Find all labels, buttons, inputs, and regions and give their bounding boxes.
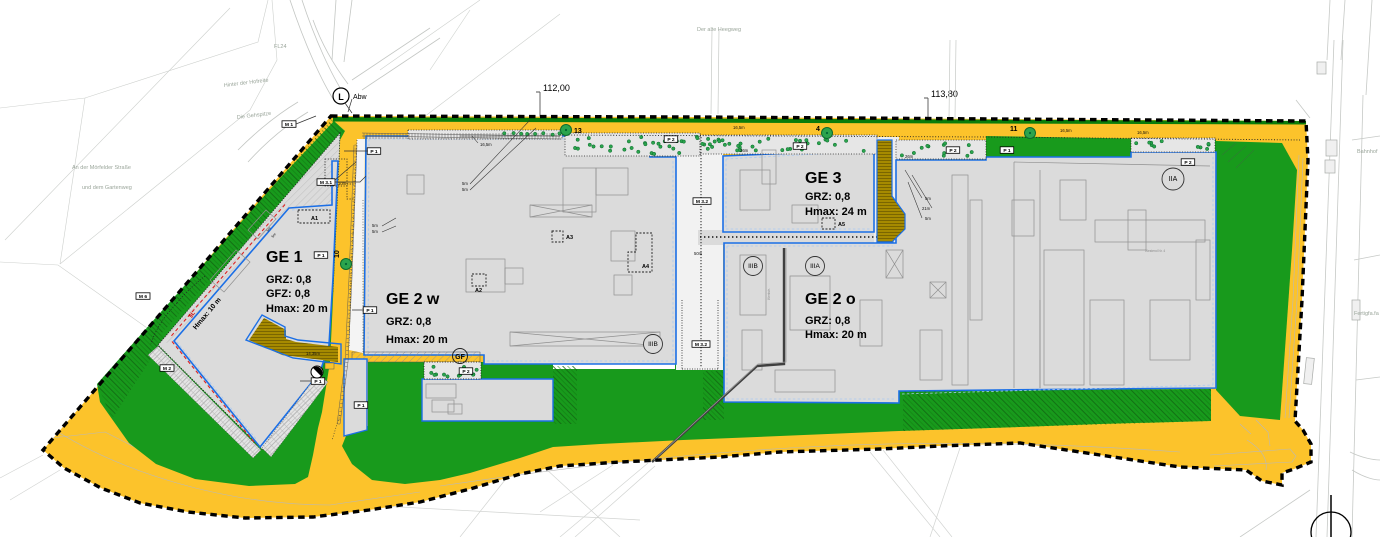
svg-text:A1: A1 [311, 216, 318, 222]
svg-text:5m: 5m [372, 223, 378, 228]
svg-text:10: 10 [334, 250, 341, 258]
svg-text:P 2: P 2 [667, 137, 675, 143]
svg-text:Werkstr.: Werkstr. [767, 288, 771, 300]
svg-text:A4: A4 [642, 264, 650, 270]
svg-text:10m: 10m [338, 181, 347, 186]
svg-text:IIIB: IIIB [748, 263, 758, 270]
svg-text:16,5m: 16,5m [480, 142, 492, 147]
svg-text:L: L [338, 92, 344, 102]
svg-text:P 1: P 1 [370, 149, 378, 155]
svg-text:P 2: P 2 [949, 148, 957, 154]
svg-text:P 1: P 1 [317, 253, 325, 259]
svg-text:GE 2 w: GE 2 w [386, 291, 440, 308]
svg-text:GE 3: GE 3 [805, 170, 842, 187]
svg-text:An der Mörfelder Straße: An der Mörfelder Straße [72, 165, 131, 171]
svg-text:Hmax: 24 m: Hmax: 24 m [805, 206, 867, 218]
svg-text:26m: 26m [905, 154, 914, 159]
svg-text:Hmax: 20 m: Hmax: 20 m [386, 334, 448, 346]
svg-text:P 1: P 1 [314, 379, 322, 385]
svg-text:M 3.2: M 3.2 [696, 199, 709, 205]
svg-text:16,5m: 16,5m [1137, 130, 1149, 135]
svg-text:5m: 5m [462, 187, 468, 192]
svg-text:M 3.1: M 3.1 [320, 180, 333, 186]
svg-text:5m: 5m [462, 181, 468, 186]
svg-text:GE 2 o: GE 2 o [805, 291, 856, 308]
svg-text:Abw: Abw [353, 94, 368, 101]
svg-text:21m: 21m [922, 206, 931, 211]
svg-text:16,5m: 16,5m [733, 125, 745, 130]
svg-text:GRZ: 0,8: GRZ: 0,8 [805, 191, 850, 203]
svg-text:16,5m: 16,5m [1060, 128, 1072, 133]
svg-text:FL24: FL24 [274, 44, 287, 50]
svg-text:IIIB: IIIB [648, 341, 658, 348]
svg-text:5m: 5m [372, 229, 378, 234]
svg-text:P 1: P 1 [357, 403, 365, 409]
svg-text:P 1: P 1 [1003, 148, 1011, 154]
svg-text:GF: GF [455, 354, 465, 361]
svg-text:P 2: P 2 [1184, 160, 1192, 166]
svg-text:112,00: 112,00 [543, 83, 570, 93]
svg-text:Hmax: 20 m: Hmax: 20 m [805, 329, 867, 341]
svg-text:Hmax: 20 m: Hmax: 20 m [266, 303, 328, 315]
svg-text:GRZ: 0,8: GRZ: 0,8 [805, 315, 850, 327]
svg-text:11: 11 [1010, 126, 1018, 133]
svg-text:5m: 5m [925, 216, 931, 221]
svg-text:P 1: P 1 [366, 308, 374, 314]
svg-text:und dem Gartenweg: und dem Gartenweg [82, 185, 132, 191]
svg-text:M 3.2: M 3.2 [695, 342, 708, 348]
svg-text:M 1: M 1 [285, 122, 293, 128]
svg-text:Die Gehspitze: Die Gehspitze [237, 111, 272, 121]
svg-text:26m: 26m [740, 148, 749, 153]
svg-text:GFZ: 0,8: GFZ: 0,8 [266, 288, 310, 300]
svg-text:Bahnhof: Bahnhof [1357, 149, 1378, 155]
svg-text:Westend Nr. 4: Westend Nr. 4 [1145, 249, 1165, 253]
svg-text:4: 4 [816, 126, 820, 133]
svg-text:IIA: IIA [1169, 176, 1178, 183]
svg-text:14,35m: 14,35m [306, 351, 320, 356]
svg-text:GRZ: 0,8: GRZ: 0,8 [266, 274, 311, 286]
svg-text:113,80: 113,80 [931, 89, 958, 99]
svg-text:P 2: P 2 [796, 144, 804, 150]
svg-text:GRZ: 0,8: GRZ: 0,8 [386, 316, 431, 328]
svg-text:50m: 50m [694, 251, 703, 256]
svg-text:A3: A3 [566, 235, 573, 241]
svg-text:GE 1: GE 1 [266, 249, 303, 266]
svg-text:M 6: M 6 [139, 294, 147, 300]
svg-text:M 2: M 2 [163, 366, 171, 372]
svg-text:Fertigfa.fa: Fertigfa.fa [1354, 311, 1380, 317]
svg-text:A2: A2 [475, 288, 482, 294]
svg-text:A5: A5 [838, 222, 845, 228]
svg-text:P 2: P 2 [462, 369, 470, 375]
svg-text:IIIA: IIIA [810, 263, 820, 270]
svg-text:13: 13 [574, 128, 582, 135]
